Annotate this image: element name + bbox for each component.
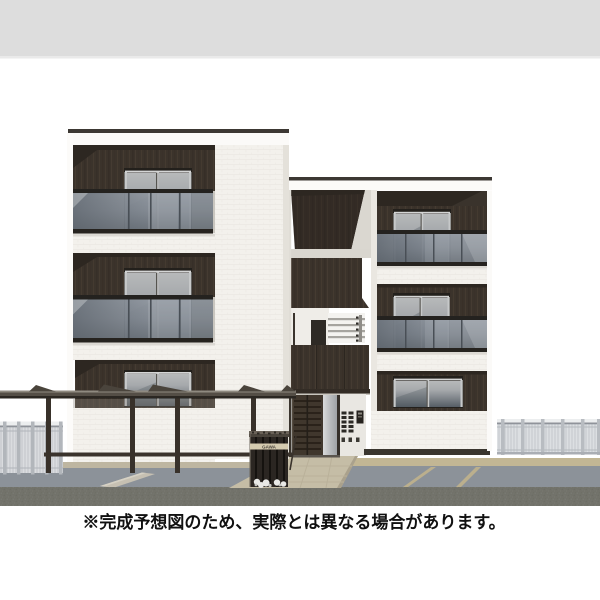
svg-text:※完成予想図のため、実際とは異なる場合があります。: ※完成予想図のため、実際とは異なる場合があります。 <box>82 512 505 532</box>
svg-text:GAWA: GAWA <box>262 445 277 450</box>
